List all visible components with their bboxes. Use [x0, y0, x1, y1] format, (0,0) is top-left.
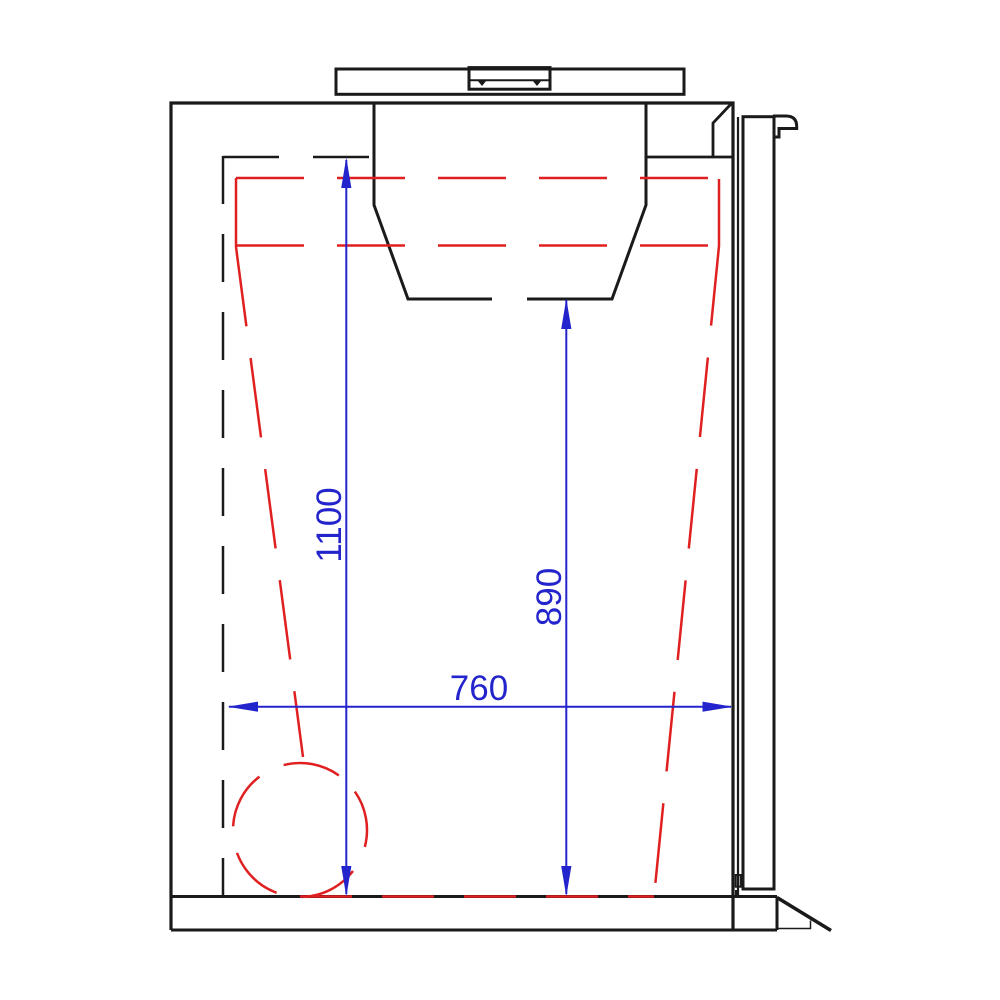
drawing-background	[0, 0, 1000, 1000]
dim-890-label: 890	[530, 568, 569, 626]
dim-760-label: 760	[450, 669, 508, 708]
technical-drawing-canvas: 1100 890 760	[0, 0, 1000, 1000]
container-section-drawing: 1100 890 760	[0, 0, 1000, 1000]
dim-1100-label: 1100	[310, 487, 349, 562]
door-bottom-hinge-pin	[735, 890, 739, 895]
